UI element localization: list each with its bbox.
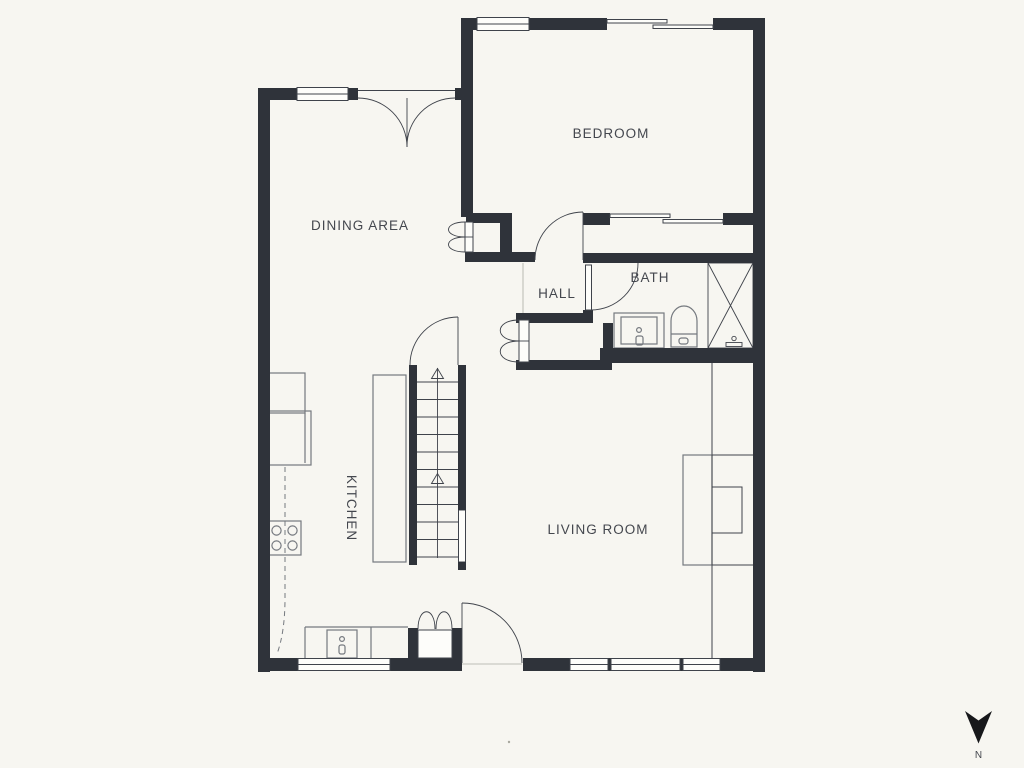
label-bath: BATH [630, 270, 669, 285]
floor-plan-svg: BEDROOM DINING AREA HALL BATH KITCHEN LI… [0, 0, 1024, 768]
label-living-room: LIVING ROOM [547, 522, 648, 537]
fridge [265, 411, 311, 465]
window [477, 18, 529, 31]
closet-doors-dining [449, 222, 474, 252]
window [297, 88, 348, 101]
wall [452, 628, 462, 658]
wall [258, 658, 298, 671]
wall-bath-bottom [600, 348, 765, 363]
fireplace-firebox [712, 487, 742, 533]
wall [529, 18, 607, 30]
sliding-window [607, 20, 713, 29]
living-room-fixtures [683, 363, 755, 658]
door-stairs [410, 317, 458, 365]
north-arrow-icon [965, 711, 992, 744]
wall [458, 562, 466, 570]
window [611, 659, 680, 671]
sliding-closet-door [610, 214, 723, 223]
wall [408, 628, 418, 658]
floor-plan-page: BEDROOM DINING AREA HALL BATH KITCHEN LI… [0, 0, 1024, 768]
kitchen-sink [327, 630, 357, 658]
kitchen-fixtures [263, 373, 408, 658]
stair-treads [417, 368, 458, 558]
toilet [671, 306, 697, 347]
label-dining-area: DINING AREA [311, 218, 409, 233]
label-kitchen: KITCHEN [344, 475, 359, 541]
fireplace [712, 455, 755, 565]
wall-stair-right [458, 365, 466, 510]
door-entry [462, 603, 522, 664]
wall-left-exterior [258, 88, 270, 672]
double-door-dining [358, 91, 455, 148]
kitchen-island [373, 375, 406, 562]
wall-closet-bottom [516, 360, 612, 370]
doors [358, 91, 638, 665]
wall [523, 658, 570, 671]
door-bedroom [535, 212, 583, 260]
hearth [683, 455, 712, 565]
stair-rail [459, 510, 466, 562]
wall [348, 88, 358, 100]
counter-dashed-edge [277, 467, 285, 654]
wall-hall-top [465, 252, 535, 262]
wall [390, 658, 462, 671]
closet-doors-kitchen [418, 612, 452, 658]
windows [297, 18, 723, 671]
window [298, 659, 390, 671]
bath-sink [614, 313, 664, 348]
wall [583, 213, 610, 225]
wall-stair-left [409, 365, 417, 565]
label-hall: HALL [538, 286, 576, 301]
north-label: N [975, 750, 982, 761]
compass: N [965, 711, 992, 761]
wall-bedroom-left [461, 18, 473, 217]
room-labels: BEDROOM DINING AREA HALL BATH KITCHEN LI… [311, 126, 670, 541]
window [570, 659, 608, 671]
wall-right-exterior [753, 18, 765, 672]
shower [708, 263, 753, 348]
wall [723, 213, 753, 225]
label-bedroom: BEDROOM [573, 126, 650, 141]
walls [258, 18, 765, 672]
window [683, 659, 720, 671]
closet-doors-hall [500, 320, 529, 362]
wall-bath-top [583, 253, 765, 263]
page-dot [508, 741, 510, 743]
wall [720, 658, 765, 671]
